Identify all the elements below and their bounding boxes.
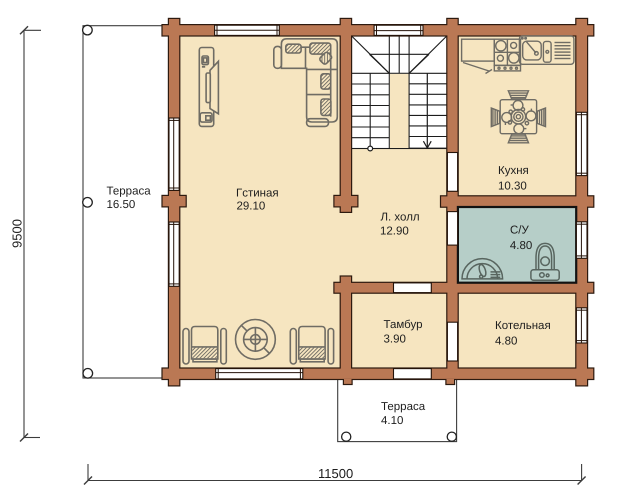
svg-text:10.30: 10.30	[498, 181, 527, 193]
svg-text:Котельная: Котельная	[495, 320, 551, 332]
svg-text:29.10: 29.10	[237, 201, 266, 213]
svg-text:Кухня: Кухня	[498, 165, 529, 177]
svg-text:12.90: 12.90	[380, 225, 409, 237]
svg-text:Терраса: Терраса	[381, 401, 426, 413]
svg-text:4.80: 4.80	[495, 336, 517, 348]
svg-text:9500: 9500	[10, 219, 25, 248]
svg-text:Тамбур: Тамбур	[384, 319, 423, 331]
svg-text:3.90: 3.90	[384, 334, 406, 346]
svg-text:4.10: 4.10	[381, 415, 403, 427]
svg-text:Гстиная: Гстиная	[236, 188, 279, 200]
svg-text:Терраса: Терраса	[107, 186, 152, 198]
svg-text:11500: 11500	[318, 466, 353, 481]
svg-text:4.80: 4.80	[510, 240, 532, 252]
svg-text:С/У: С/У	[510, 225, 530, 237]
svg-text:16.50: 16.50	[107, 199, 136, 211]
svg-text:Л. холл: Л. холл	[381, 212, 420, 224]
